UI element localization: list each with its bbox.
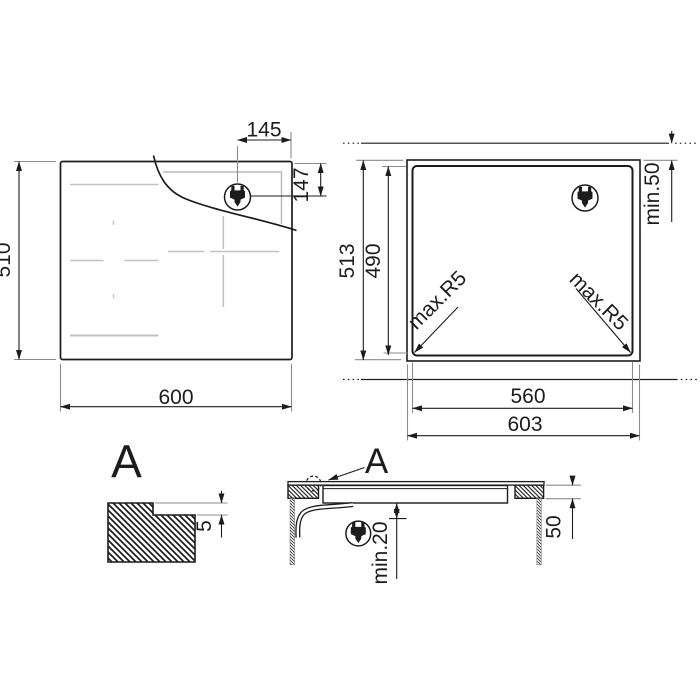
- cabinet-wall-left: [290, 498, 295, 565]
- cutout-outline: [413, 166, 633, 356]
- detail-extension-lines: [155, 503, 228, 515]
- worktop-section-left: [288, 485, 319, 498]
- detail-a-title: A: [111, 436, 142, 488]
- power-cable: [298, 505, 353, 538]
- dim-label-603: 603: [507, 413, 542, 436]
- cabinet-wall-right: [537, 498, 542, 565]
- power-plug-icon: [572, 185, 598, 211]
- glass-top-section: [288, 482, 544, 486]
- hob-installation-drawing: 510 600 145 147: [0, 0, 700, 700]
- worktop-section-right: [515, 485, 544, 498]
- section-extension-lines: [546, 485, 582, 499]
- cutout-view: 513 490 560 603 min.50 max.R5 max.R5: [336, 131, 698, 441]
- detail-ref-leader: [329, 468, 365, 481]
- technical-drawing-canvas: 510 600 145 147: [0, 0, 700, 700]
- dim-label-513: 513: [336, 243, 359, 278]
- top-view: 510 600 145 147: [0, 119, 327, 412]
- dim-label-5: 5: [193, 520, 216, 532]
- section-view: A min.20 50: [288, 442, 581, 585]
- dim-label-145: 145: [246, 119, 281, 142]
- dim-label-600: 600: [158, 386, 193, 409]
- dim-label-147: 147: [290, 167, 313, 202]
- dim-label-490: 490: [362, 243, 385, 278]
- dim-label-50: 50: [543, 515, 566, 538]
- dim-label-min50: min.50: [641, 162, 664, 225]
- detail-a-view: A 5: [108, 436, 228, 563]
- dim-label-min20: min.20: [369, 521, 392, 584]
- power-plug-icon: [346, 521, 371, 546]
- worktop-rebate-section: [108, 503, 195, 562]
- power-plug-icon: [225, 184, 251, 210]
- dim-label-560: 560: [510, 385, 545, 408]
- dim-label-510: 510: [0, 242, 15, 277]
- section-detail-ref: A: [365, 442, 389, 481]
